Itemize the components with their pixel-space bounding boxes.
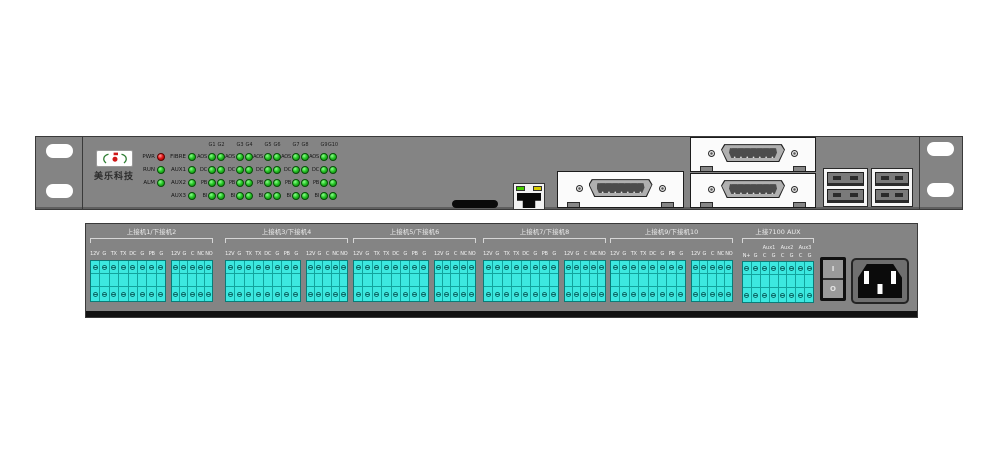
terminal-label: C bbox=[796, 252, 805, 259]
screw-icon bbox=[130, 265, 135, 270]
screw-icon bbox=[256, 292, 261, 297]
terminal-label: C bbox=[323, 250, 331, 258]
led-row-label: AOS bbox=[225, 153, 235, 161]
screw-icon bbox=[807, 266, 812, 271]
terminal-label: G bbox=[677, 250, 687, 258]
terminal-top bbox=[226, 261, 234, 274]
group-bracket bbox=[610, 238, 733, 243]
terminal-block bbox=[171, 260, 213, 302]
terminal-bottom bbox=[649, 287, 657, 301]
terminal-block bbox=[564, 260, 606, 302]
terminal-bottom bbox=[700, 287, 707, 301]
screw-icon bbox=[631, 265, 636, 270]
terminal bbox=[205, 261, 212, 301]
screw-icon bbox=[333, 292, 338, 297]
port-icon bbox=[875, 172, 909, 186]
screw-icon bbox=[265, 292, 270, 297]
terminal bbox=[245, 261, 254, 301]
screw-icon bbox=[93, 265, 98, 270]
terminal bbox=[639, 261, 648, 301]
terminal-body bbox=[677, 274, 685, 287]
screw-icon bbox=[237, 265, 242, 270]
screw-icon bbox=[669, 292, 674, 297]
led-label: AUX2 bbox=[166, 179, 186, 187]
terminal-top bbox=[138, 261, 146, 274]
power-inlet bbox=[851, 258, 909, 304]
terminal-label: 12V bbox=[483, 250, 493, 258]
terminal-block bbox=[90, 260, 166, 302]
terminal-group: 上接机7/下接机812VGTXTXDCGPBG12VGCNCNO bbox=[483, 228, 606, 302]
terminal-label: TX bbox=[119, 250, 129, 258]
channel-led bbox=[217, 192, 225, 200]
terminal-top bbox=[420, 261, 428, 274]
terminal-top bbox=[550, 261, 558, 274]
terminal-label: C bbox=[581, 250, 589, 258]
terminal bbox=[264, 261, 273, 301]
terminal-label: G bbox=[769, 252, 778, 259]
group-bracket bbox=[353, 238, 476, 243]
terminal bbox=[451, 261, 459, 301]
terminal-label: NC bbox=[332, 250, 340, 258]
terminal-body bbox=[796, 275, 804, 288]
terminal-top bbox=[205, 261, 212, 274]
screw-icon bbox=[93, 292, 98, 297]
channel-led bbox=[329, 166, 337, 174]
terminal-label: 12V bbox=[691, 250, 700, 258]
terminal-top bbox=[340, 261, 347, 274]
terminal-body bbox=[573, 274, 580, 287]
terminal-top bbox=[796, 262, 804, 275]
channel-led bbox=[320, 166, 328, 174]
terminal-label: 12V bbox=[610, 250, 620, 258]
led-label: FIBRE bbox=[166, 153, 186, 161]
screw-icon bbox=[444, 292, 449, 297]
db15-connector bbox=[708, 180, 798, 198]
terminal-block bbox=[742, 261, 814, 303]
block1-labels: 12VGTXTXDCGPBG bbox=[353, 250, 429, 258]
channel-led bbox=[208, 192, 216, 200]
activity-led bbox=[533, 186, 542, 191]
led-row-label: BI bbox=[253, 192, 263, 200]
terminal-top bbox=[630, 261, 638, 274]
terminal-body bbox=[522, 274, 530, 287]
group-label: 上接机3/下接机4 bbox=[225, 228, 348, 237]
screw-icon bbox=[393, 265, 398, 270]
terminal-top bbox=[667, 261, 675, 274]
terminal bbox=[460, 261, 468, 301]
terminal-label: TX bbox=[109, 250, 119, 258]
terminal-bottom bbox=[770, 288, 778, 302]
screw-icon bbox=[469, 265, 474, 270]
screw-icon bbox=[669, 265, 674, 270]
terminal bbox=[382, 261, 391, 301]
terminal-bottom bbox=[522, 287, 530, 301]
terminal bbox=[620, 261, 629, 301]
led-row-label: DC bbox=[253, 166, 263, 174]
screw-icon bbox=[622, 265, 627, 270]
terminal-bottom bbox=[292, 287, 300, 301]
terminal-label: C bbox=[778, 252, 787, 259]
screw-icon bbox=[384, 292, 389, 297]
db15-shell bbox=[721, 144, 785, 162]
terminal-label: NC bbox=[590, 250, 598, 258]
rear-bottom-edge bbox=[86, 311, 917, 317]
screw-icon bbox=[325, 292, 330, 297]
screw-icon bbox=[365, 265, 370, 270]
terminal-body bbox=[180, 274, 187, 287]
terminal-labels: 12VGTXTXDCGPBG12VGCNCNO bbox=[483, 250, 606, 258]
screw-icon bbox=[265, 265, 270, 270]
screw-icon bbox=[173, 265, 178, 270]
terminal-label: 12V bbox=[564, 250, 573, 258]
terminal bbox=[708, 261, 716, 301]
terminal-bottom bbox=[420, 287, 428, 301]
screw-icon bbox=[495, 292, 500, 297]
channel-led bbox=[208, 153, 216, 161]
port-block-2 bbox=[871, 168, 913, 207]
block1-labels: 12VGTXTXDCGPBG bbox=[225, 250, 301, 258]
terminal-top bbox=[468, 261, 475, 274]
terminal-labels: 12VGTXTXDCGPBG12VGCNCNO bbox=[90, 250, 213, 258]
terminal-body bbox=[373, 274, 381, 287]
terminal bbox=[717, 261, 725, 301]
screw-icon bbox=[678, 265, 683, 270]
screw-icon bbox=[198, 265, 203, 270]
terminal-bottom bbox=[226, 287, 234, 301]
terminal-label: NC bbox=[197, 250, 205, 258]
terminal bbox=[373, 261, 382, 301]
db15-shell bbox=[721, 180, 785, 198]
port-icon bbox=[827, 189, 864, 203]
terminal bbox=[512, 261, 521, 301]
terminal-body bbox=[743, 275, 751, 288]
terminal-bottom bbox=[512, 287, 520, 301]
channel-led bbox=[301, 192, 309, 200]
screw-icon bbox=[591, 265, 596, 270]
terminal-body bbox=[805, 275, 813, 288]
terminal-bottom bbox=[540, 287, 548, 301]
screw-icon bbox=[613, 292, 618, 297]
terminal-top bbox=[493, 261, 501, 274]
terminal-top bbox=[147, 261, 155, 274]
terminal-bottom bbox=[573, 287, 580, 301]
terminal bbox=[188, 261, 196, 301]
terminal bbox=[805, 262, 813, 302]
terminal-body bbox=[205, 274, 212, 287]
block1-labels: 12VGTXTXDCGPBG bbox=[610, 250, 686, 258]
terminal-top bbox=[188, 261, 195, 274]
screw-icon bbox=[780, 266, 785, 271]
terminal-label: C bbox=[451, 250, 459, 258]
aux-terminal-blocks bbox=[742, 261, 814, 303]
channel-header: G10 bbox=[326, 142, 340, 149]
channel-header: G4 bbox=[242, 142, 256, 149]
channel-led bbox=[236, 153, 244, 161]
port-icon bbox=[875, 189, 909, 203]
channel-led bbox=[329, 192, 337, 200]
screw-icon bbox=[228, 265, 233, 270]
terminal-body bbox=[138, 274, 146, 287]
terminal-group: 上接机3/下接机412VGTXTXDCGPBG12VGCNCNO bbox=[225, 228, 348, 302]
terminal-label: PB bbox=[147, 250, 157, 258]
terminal-bottom bbox=[138, 287, 146, 301]
mount-hole bbox=[927, 142, 954, 156]
terminal-label: G bbox=[100, 250, 110, 258]
terminal bbox=[129, 261, 138, 301]
terminal-bottom bbox=[611, 287, 619, 301]
screw-icon bbox=[140, 292, 145, 297]
channel-led bbox=[329, 153, 337, 161]
aux-bracket bbox=[742, 238, 814, 243]
terminal bbox=[598, 261, 605, 301]
channel-led bbox=[301, 153, 309, 161]
terminal bbox=[91, 261, 100, 301]
terminal-bottom bbox=[581, 287, 588, 301]
terminal-body bbox=[598, 274, 605, 287]
screw-icon bbox=[190, 292, 195, 297]
terminal-bottom bbox=[796, 288, 804, 302]
terminal-body bbox=[332, 274, 339, 287]
channel-led bbox=[217, 179, 225, 187]
terminal bbox=[420, 261, 428, 301]
terminal-top bbox=[611, 261, 619, 274]
terminal-bottom bbox=[565, 287, 572, 301]
terminal-label: PB bbox=[282, 250, 292, 258]
screw-icon bbox=[791, 150, 798, 157]
screw-icon bbox=[461, 265, 466, 270]
terminal-body bbox=[110, 274, 118, 287]
terminal bbox=[611, 261, 620, 301]
terminal-top bbox=[484, 261, 492, 274]
terminal-label: G bbox=[787, 252, 796, 259]
screw-icon bbox=[237, 292, 242, 297]
terminal-bottom bbox=[435, 287, 442, 301]
channel-led bbox=[208, 166, 216, 174]
led-label: ALM bbox=[140, 179, 155, 187]
link-led bbox=[516, 186, 525, 191]
terminal bbox=[725, 261, 732, 301]
terminal-top bbox=[503, 261, 511, 274]
channel-led bbox=[236, 166, 244, 174]
screw-icon bbox=[576, 185, 583, 192]
socket-pin bbox=[878, 284, 883, 294]
terminal-top bbox=[460, 261, 467, 274]
terminal-body bbox=[340, 274, 347, 287]
terminal-body bbox=[540, 274, 548, 287]
group-bracket bbox=[483, 238, 606, 243]
terminal bbox=[658, 261, 667, 301]
screw-icon bbox=[275, 265, 280, 270]
terminal-block bbox=[610, 260, 686, 302]
terminal-label: DC bbox=[521, 250, 531, 258]
terminal-body bbox=[717, 274, 724, 287]
screw-icon bbox=[762, 266, 767, 271]
terminal-top bbox=[315, 261, 322, 274]
terminal-top bbox=[512, 261, 520, 274]
terminal bbox=[540, 261, 549, 301]
switch-on-mark: I bbox=[823, 260, 843, 280]
block2-labels: 12VGCNCNO bbox=[564, 250, 606, 258]
screw-icon bbox=[613, 265, 618, 270]
terminal-label: TX bbox=[629, 250, 639, 258]
plate-tab bbox=[793, 166, 806, 171]
screw-icon bbox=[316, 265, 321, 270]
terminal-top bbox=[157, 261, 165, 274]
screw-icon bbox=[421, 265, 426, 270]
channel-led bbox=[245, 179, 253, 187]
power-switch: I O bbox=[820, 257, 846, 301]
terminal-top bbox=[129, 261, 137, 274]
screw-icon bbox=[453, 265, 458, 270]
terminal-label: G bbox=[315, 250, 323, 258]
screw-icon bbox=[551, 265, 556, 270]
channel-led bbox=[273, 179, 281, 187]
screw-icon bbox=[583, 292, 588, 297]
terminal bbox=[493, 261, 502, 301]
terminal-block bbox=[306, 260, 348, 302]
screw-icon bbox=[693, 292, 698, 297]
terminal-body bbox=[410, 274, 418, 287]
terminal-label: 12V bbox=[171, 250, 180, 258]
terminal bbox=[581, 261, 589, 301]
terminal-top bbox=[264, 261, 272, 274]
terminal-top bbox=[620, 261, 628, 274]
terminal-bottom bbox=[264, 287, 272, 301]
terminal-blocks bbox=[610, 260, 733, 302]
screw-icon bbox=[599, 292, 604, 297]
terminal-groups: 上接机1/下接机212VGTXTXDCGPBG12VGCNCNO上接机3/下接机… bbox=[86, 224, 917, 317]
terminal-top bbox=[435, 261, 442, 274]
terminal-top bbox=[332, 261, 339, 274]
port-icon bbox=[827, 172, 864, 186]
terminal-top bbox=[292, 261, 300, 274]
terminal bbox=[292, 261, 300, 301]
terminal-blocks bbox=[483, 260, 606, 302]
screw-icon bbox=[708, 150, 715, 157]
terminal-block bbox=[691, 260, 733, 302]
aux1-led bbox=[188, 166, 196, 174]
terminal-label: G bbox=[443, 250, 451, 258]
terminal bbox=[649, 261, 658, 301]
group-label: 上接机9/下接机10 bbox=[610, 228, 733, 237]
terminal-label: 12V bbox=[225, 250, 235, 258]
terminal-top bbox=[573, 261, 580, 274]
terminal-bottom bbox=[590, 287, 597, 301]
port-block-1 bbox=[823, 168, 868, 207]
screw-icon bbox=[356, 265, 361, 270]
screw-icon bbox=[771, 293, 776, 298]
screw-icon bbox=[789, 293, 794, 298]
terminal-body bbox=[550, 274, 558, 287]
pwr-led bbox=[157, 153, 165, 161]
screw-icon bbox=[514, 292, 519, 297]
terminal-top bbox=[725, 261, 732, 274]
terminal-label: G bbox=[363, 250, 373, 258]
terminal-top bbox=[770, 262, 778, 275]
terminal bbox=[573, 261, 581, 301]
socket-pin bbox=[891, 271, 896, 284]
screw-icon bbox=[631, 292, 636, 297]
screw-icon bbox=[256, 265, 261, 270]
terminal-bottom bbox=[550, 287, 558, 301]
terminal-block bbox=[434, 260, 476, 302]
terminal-top bbox=[273, 261, 281, 274]
port-contact bbox=[833, 176, 841, 180]
screw-icon bbox=[284, 292, 289, 297]
channel-led bbox=[301, 179, 309, 187]
terminal-label: TX bbox=[382, 250, 392, 258]
channel-led bbox=[245, 153, 253, 161]
block2-labels: 12VGCNCNO bbox=[171, 250, 213, 258]
terminal-label: G bbox=[401, 250, 411, 258]
terminal bbox=[443, 261, 451, 301]
screw-icon bbox=[403, 292, 408, 297]
terminal-label: TX bbox=[254, 250, 264, 258]
port-contact bbox=[895, 176, 903, 180]
screw-icon bbox=[453, 292, 458, 297]
terminal-body bbox=[401, 274, 409, 287]
terminal-label: NC bbox=[460, 250, 468, 258]
mount-hole bbox=[46, 184, 73, 198]
channel-led bbox=[329, 179, 337, 187]
terminal-bottom bbox=[382, 287, 390, 301]
terminal bbox=[677, 261, 685, 301]
screw-icon bbox=[421, 292, 426, 297]
rack-ear-left bbox=[36, 137, 83, 209]
terminal-body bbox=[129, 274, 137, 287]
terminal-label: NO bbox=[725, 250, 733, 258]
terminal-bottom bbox=[205, 287, 212, 301]
terminal bbox=[119, 261, 128, 301]
aux-label: 上接7100 AUX bbox=[742, 228, 814, 237]
channel-led bbox=[320, 153, 328, 161]
terminal-bottom bbox=[180, 287, 187, 301]
terminal-body bbox=[188, 274, 195, 287]
terminal bbox=[273, 261, 282, 301]
terminal-label: G bbox=[620, 250, 630, 258]
terminal bbox=[226, 261, 235, 301]
terminal-bottom bbox=[630, 287, 638, 301]
terminal-body bbox=[172, 274, 179, 287]
screw-icon bbox=[198, 292, 203, 297]
channel-led bbox=[320, 192, 328, 200]
screw-icon bbox=[102, 292, 107, 297]
terminal bbox=[254, 261, 263, 301]
block2-labels: 12VGCNCNO bbox=[306, 250, 348, 258]
terminal-body bbox=[581, 274, 588, 287]
terminal-top bbox=[717, 261, 724, 274]
terminal-bottom bbox=[725, 287, 732, 301]
terminal-bottom bbox=[484, 287, 492, 301]
terminal-bottom bbox=[315, 287, 322, 301]
terminal-top bbox=[245, 261, 253, 274]
terminal-label: DC bbox=[648, 250, 658, 258]
aux-sub-label: Aux3 bbox=[796, 245, 814, 252]
led-row-label: PB bbox=[197, 179, 207, 187]
terminal-top bbox=[692, 261, 699, 274]
terminal-top bbox=[522, 261, 530, 274]
channel-led bbox=[236, 179, 244, 187]
alm-led bbox=[157, 179, 165, 187]
screw-icon bbox=[365, 292, 370, 297]
terminal-bottom bbox=[119, 287, 127, 301]
terminal bbox=[692, 261, 700, 301]
terminal-label: G bbox=[493, 250, 503, 258]
screw-icon bbox=[111, 292, 116, 297]
terminal-body bbox=[451, 274, 458, 287]
aux-group: 上接7100 AUXAux1Aux2Aux3N+GCGCGCG bbox=[742, 228, 814, 303]
terminal-label: TX bbox=[372, 250, 382, 258]
